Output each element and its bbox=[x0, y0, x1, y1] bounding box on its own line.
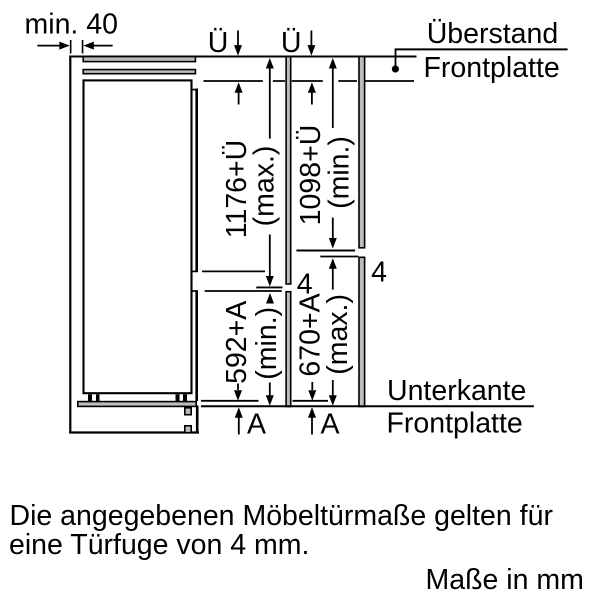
svg-text:A: A bbox=[247, 409, 266, 441]
svg-text:Frontplatte: Frontplatte bbox=[387, 408, 523, 440]
svg-text:Maße in mm: Maße in mm bbox=[426, 564, 584, 596]
svg-text:4: 4 bbox=[371, 256, 387, 288]
svg-text:A: A bbox=[321, 409, 340, 441]
svg-text:592+A: 592+A bbox=[221, 301, 253, 384]
svg-text:Überstand: Überstand bbox=[427, 18, 559, 50]
svg-text:eine Türfuge von 4 mm.: eine Türfuge von 4 mm. bbox=[9, 529, 309, 561]
svg-text:(min.): (min.) bbox=[324, 136, 356, 209]
svg-text:(min.): (min.) bbox=[251, 307, 283, 380]
svg-text:Die angegebenen Möbeltürmaße g: Die angegebenen Möbeltürmaße gelten für bbox=[10, 500, 554, 532]
svg-text:(max.): (max.) bbox=[249, 146, 281, 227]
svg-text:1098+Ü: 1098+Ü bbox=[295, 125, 327, 226]
svg-text:Frontplatte: Frontplatte bbox=[424, 52, 560, 84]
svg-text:(max.): (max.) bbox=[322, 294, 354, 375]
svg-text:Ü: Ü bbox=[281, 27, 302, 59]
svg-text:min. 40: min. 40 bbox=[25, 9, 118, 41]
svg-text:Unterkante: Unterkante bbox=[387, 375, 526, 407]
svg-text:Ü: Ü bbox=[208, 27, 229, 59]
